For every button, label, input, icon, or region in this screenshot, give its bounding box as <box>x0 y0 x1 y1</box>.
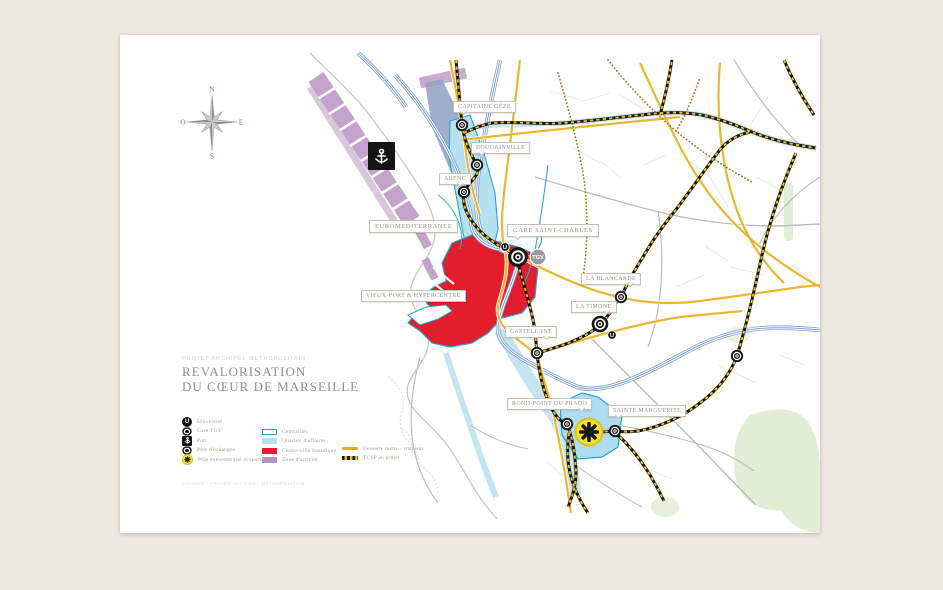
credit-line: SOURCE : PROJET ARCHIPEL METROPOLITAIN <box>182 481 305 486</box>
map-label-vieux-port: VIEUX-PORT & HYPERCENTRE <box>361 290 466 302</box>
compass-west: O <box>180 118 186 127</box>
map-label-arenc: ARENC <box>439 173 471 185</box>
map-label-bougainville: BOUGAINVILLE <box>471 142 530 154</box>
centre-ville-swatch <box>262 448 277 454</box>
universite-icon <box>182 417 192 427</box>
pole-evenementiel-icon <box>182 454 193 465</box>
stadium-icon <box>576 419 603 446</box>
map-label-la-timone: LA TIMONE <box>571 301 617 313</box>
universite-badge-saint-charles: U <box>501 243 510 252</box>
legend-item-desserte: Desserte métro / tramway <box>342 444 424 454</box>
legend-areas: Centralités Quartier d'affaires Centre-v… <box>262 427 336 465</box>
page-title-line2: DU CŒUR DE MARSEILLE <box>182 379 359 394</box>
poster-page: TGV U U N E S O <box>0 0 943 590</box>
legend-item-pole-evenementiel: Pôle événementiel et sportif <box>182 455 265 465</box>
map-label-rond-point-du-prado: ROND-POINT DU PRADO <box>507 398 592 410</box>
compass-rose: N E S O <box>176 82 248 164</box>
svg-text:U: U <box>503 245 507 251</box>
desserte-line-swatch <box>342 447 358 450</box>
legend-item-zone-activite: Zone d'activité <box>262 456 336 466</box>
kicker: PROJET ARCHIPEL METROPOLITAIN <box>182 356 359 362</box>
map-label-capitaine-geze: CAPITAINE GÈZE <box>453 101 516 113</box>
zone-activite-swatch <box>262 457 277 463</box>
legend-item-centralites: Centralités <box>262 427 336 437</box>
tgv-badge: TGV <box>530 249 546 265</box>
universite-badge-timone: U <box>608 331 617 340</box>
quartier-affaires-swatch <box>262 438 277 444</box>
map-label-euromediterranee: EUROMEDITERRANEE <box>369 220 458 233</box>
map-label-castellane: CASTELLANE <box>505 326 557 338</box>
legend-item-quartier-affaires: Quartier d'affaires <box>262 437 336 447</box>
legend-item-pole-echanges: Pôle d'échanges <box>182 446 265 456</box>
centralites-swatch <box>262 429 277 435</box>
map-label-la-blancarde: LA BLANCARDE <box>581 273 641 285</box>
map-card: TGV U U N E S O <box>120 35 820 533</box>
compass-south: S <box>210 152 214 161</box>
compass-north: N <box>209 85 215 94</box>
title-block: PROJET ARCHIPEL METROPOLITAIN REVALORISA… <box>182 356 359 395</box>
map-label-gare-saint-charles: GARE SAINT-CHARLES <box>507 224 599 237</box>
legend-points: Université Gare TGV Port Pôle d'échanges <box>182 417 265 465</box>
svg-text:U: U <box>610 333 614 339</box>
port-anchor-icon <box>368 142 395 170</box>
legend-lines: Desserte métro / tramway TCSP en projet <box>342 444 424 463</box>
legend-item-port: Port <box>182 436 265 446</box>
port-icon <box>182 436 192 446</box>
legend-item-universite: Université <box>182 417 265 427</box>
compass-east: E <box>239 118 244 127</box>
legend-item-tcsp: TCSP en projet <box>342 454 424 464</box>
legend-item-gare-tgv: Gare TGV <box>182 427 265 437</box>
page-title-line1: REVALORISATION <box>182 364 359 379</box>
legend-item-centre-ville: Centre-ville historique <box>262 446 336 456</box>
gare-tgv-icon <box>182 426 192 436</box>
svg-text:TGV: TGV <box>532 255 544 261</box>
tcsp-line-swatch <box>342 456 358 460</box>
map-label-sainte-marguerite: SAINTE MARGUERITE <box>608 405 686 417</box>
